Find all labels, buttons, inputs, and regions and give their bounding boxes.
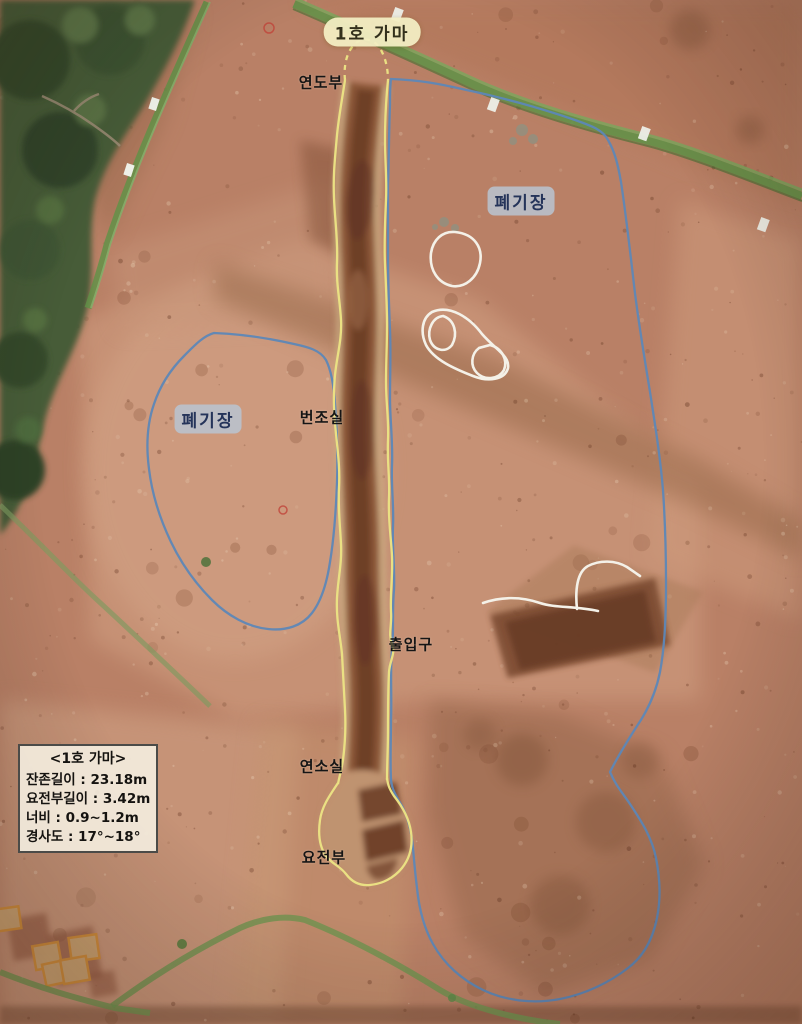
aerial-photo-figure: 1호 가마 연도부 폐기장 폐기장 번조실 출입구 연소실 요전부 <1호 가마… [0, 0, 802, 1024]
kiln-title-label: 1호 가마 [324, 18, 421, 47]
combustion-chamber-label: 연소실 [300, 756, 344, 777]
kiln-front-label: 요전부 [302, 847, 346, 868]
waste-dump-label-left: 폐기장 [175, 405, 242, 434]
waste-dump-label-right: 폐기장 [488, 187, 555, 216]
entrance-label: 출입구 [389, 634, 433, 655]
measurement-line: 너비 : 0.9~1.2m [26, 809, 150, 828]
measurement-line: 잔존길이 : 23.18m [26, 771, 150, 790]
measurement-line: 경사도 : 17°~18° [26, 828, 150, 847]
measurement-box-title: <1호 가마> [26, 750, 150, 769]
measurement-line: 요전부길이 : 3.42m [26, 790, 150, 809]
aerial-photo [0, 0, 802, 1024]
flue-label: 연도부 [299, 72, 343, 93]
vignette [0, 0, 802, 1024]
firing-chamber-label: 번조실 [300, 407, 344, 428]
measurement-box: <1호 가마> 잔존길이 : 23.18m 요전부길이 : 3.42m 너비 :… [18, 744, 158, 853]
